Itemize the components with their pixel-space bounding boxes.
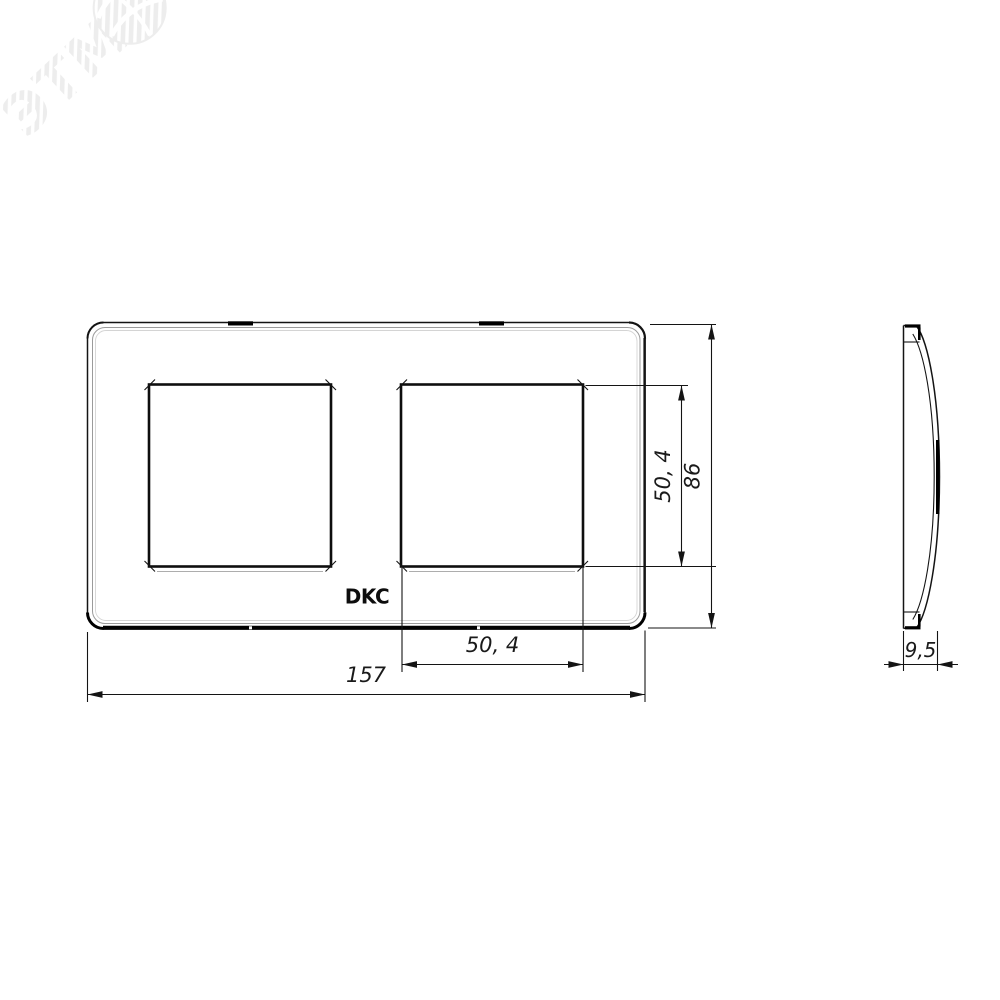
frame-top-notch-left	[228, 321, 253, 325]
frame-bottom-notch-right	[477, 626, 480, 629]
dim-overall-height-label: 86	[681, 463, 705, 490]
dim-opening-height-label: 50, 4	[651, 449, 675, 502]
brand-logo: DKC	[345, 585, 389, 609]
dim-overall-width-label: 157	[346, 663, 387, 687]
frame-bottom-notch-left	[249, 626, 252, 629]
dim-thickness-label: 9,5	[905, 638, 937, 662]
dim-opening-width-label: 50, 4	[466, 633, 519, 657]
technical-drawing-canvas: ЭТМ	[0, 0, 1000, 1000]
frame-top-notch-right	[479, 321, 504, 325]
